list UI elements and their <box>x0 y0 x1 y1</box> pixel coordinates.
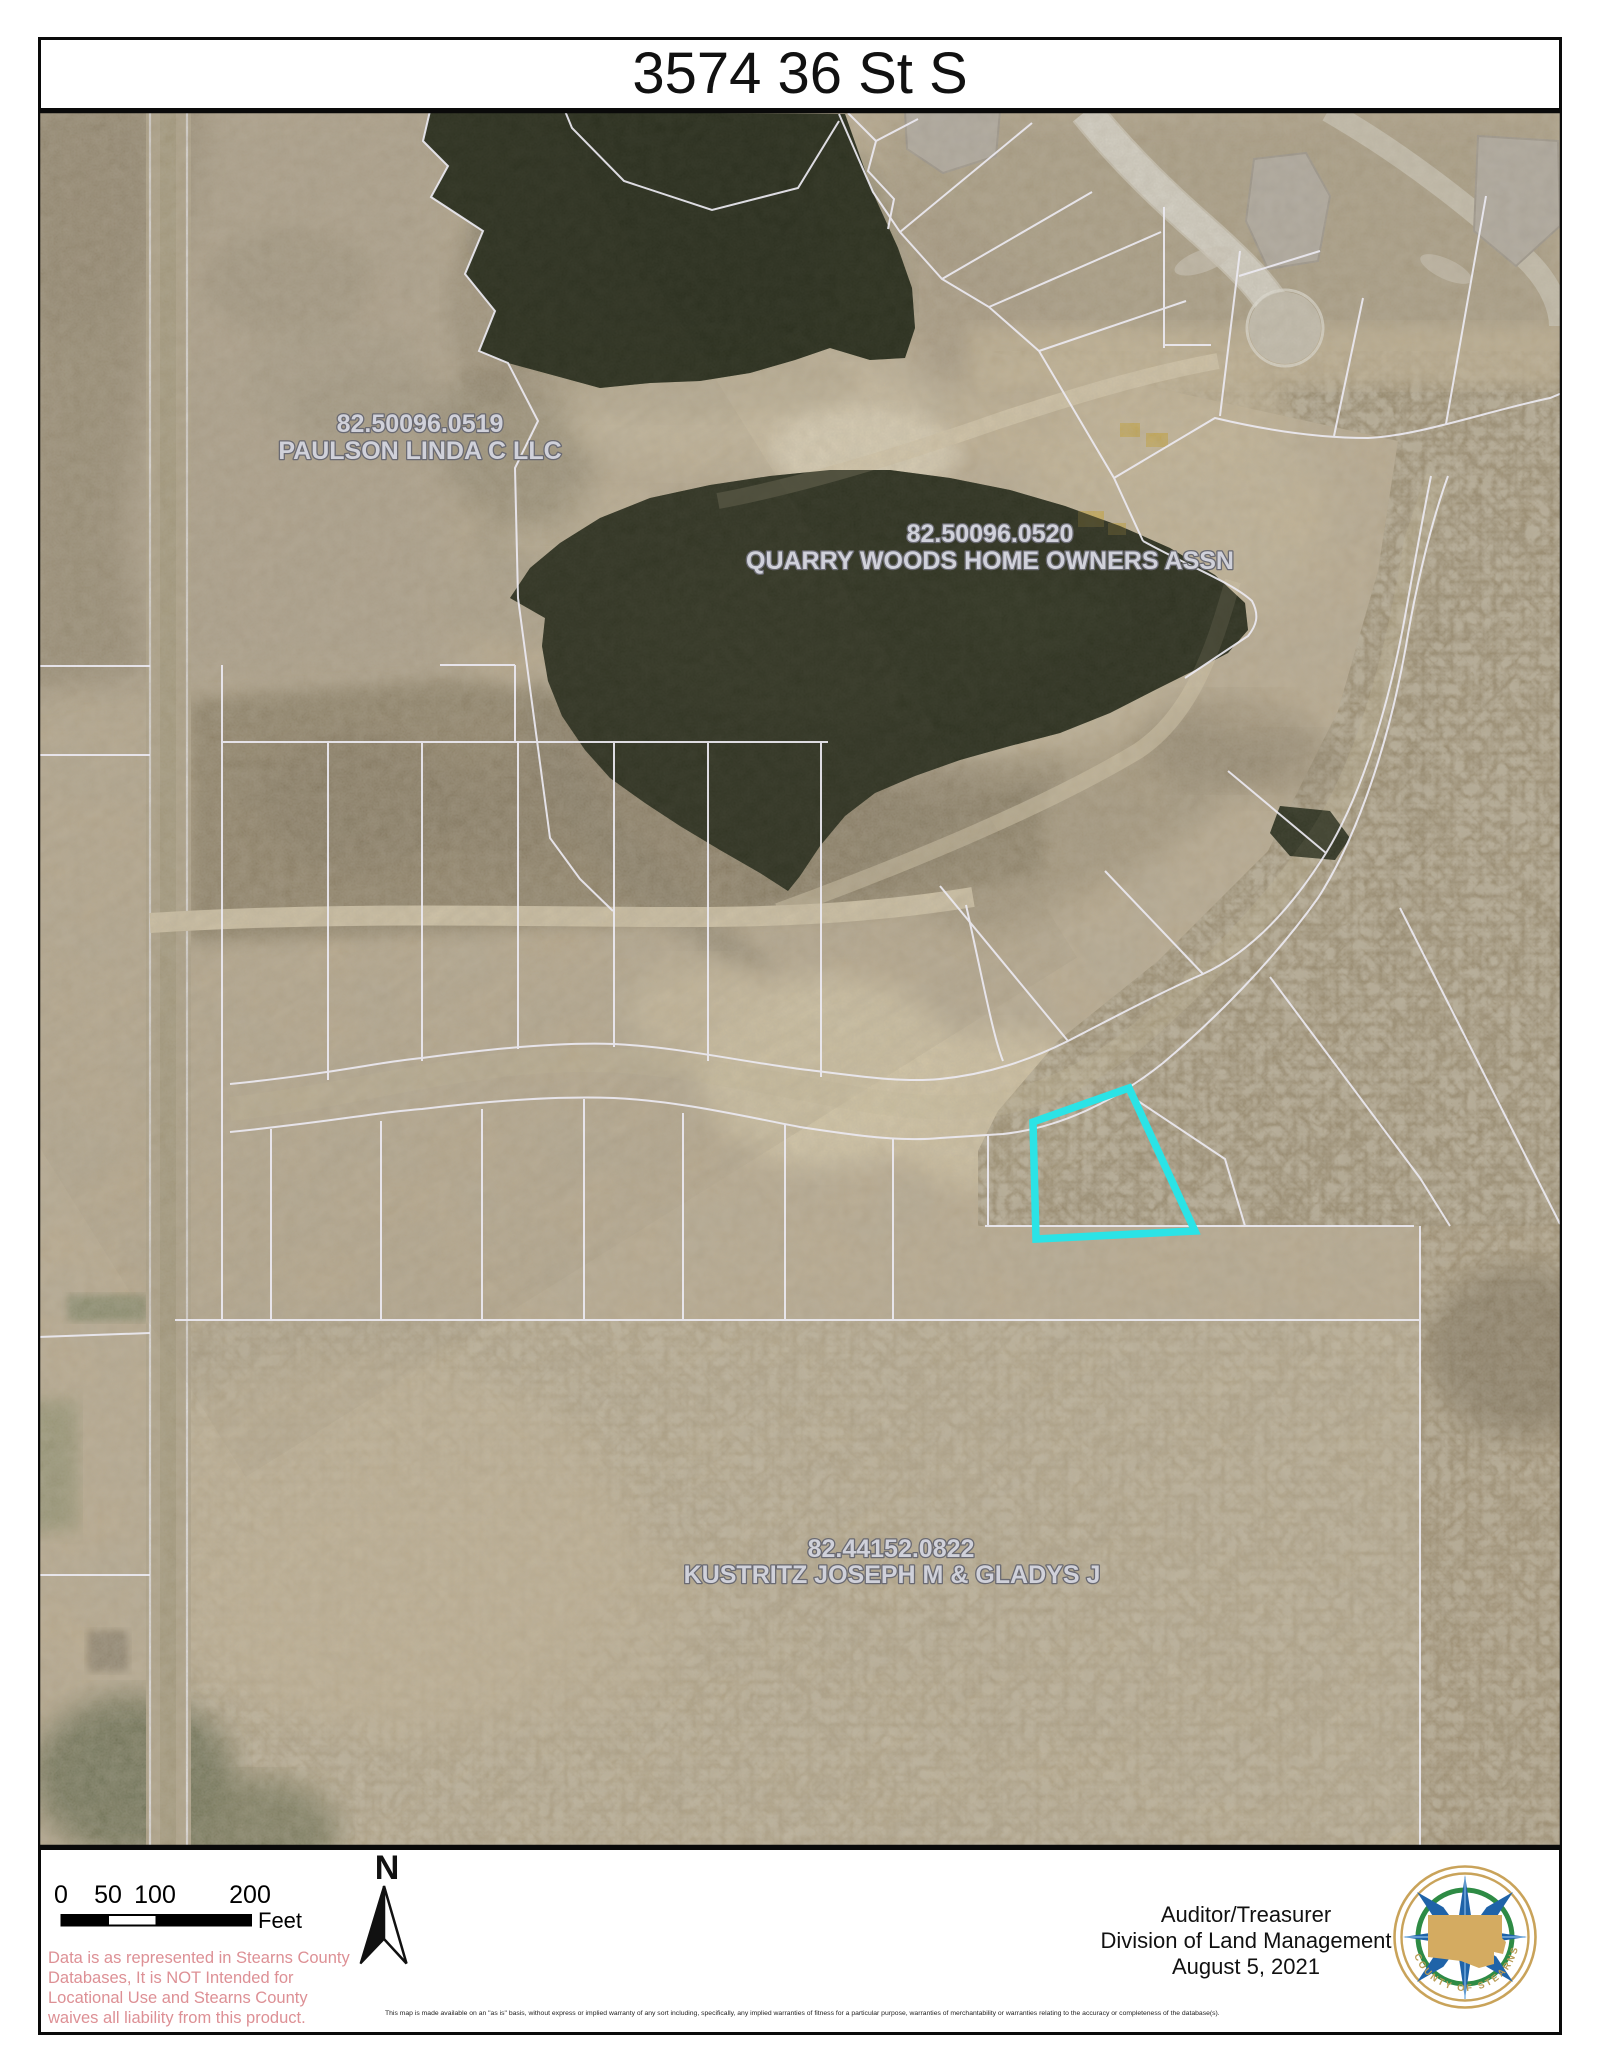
svg-text:N: N <box>375 1850 400 1887</box>
svg-text:82.50096.0520: 82.50096.0520 <box>907 520 1074 548</box>
svg-text:82.44152.0822: 82.44152.0822 <box>808 1535 975 1563</box>
svg-text:PAULSON LINDA C LLC: PAULSON LINDA C LLC <box>278 437 561 465</box>
svg-text:QUARRY WOODS HOME OWNERS ASSN: QUARRY WOODS HOME OWNERS ASSN <box>746 547 1234 575</box>
svg-text:KUSTRITZ JOSEPH M & GLADYS J: KUSTRITZ JOSEPH M & GLADYS J <box>684 1561 1101 1589</box>
svg-text:82.50096.0519: 82.50096.0519 <box>337 410 504 438</box>
